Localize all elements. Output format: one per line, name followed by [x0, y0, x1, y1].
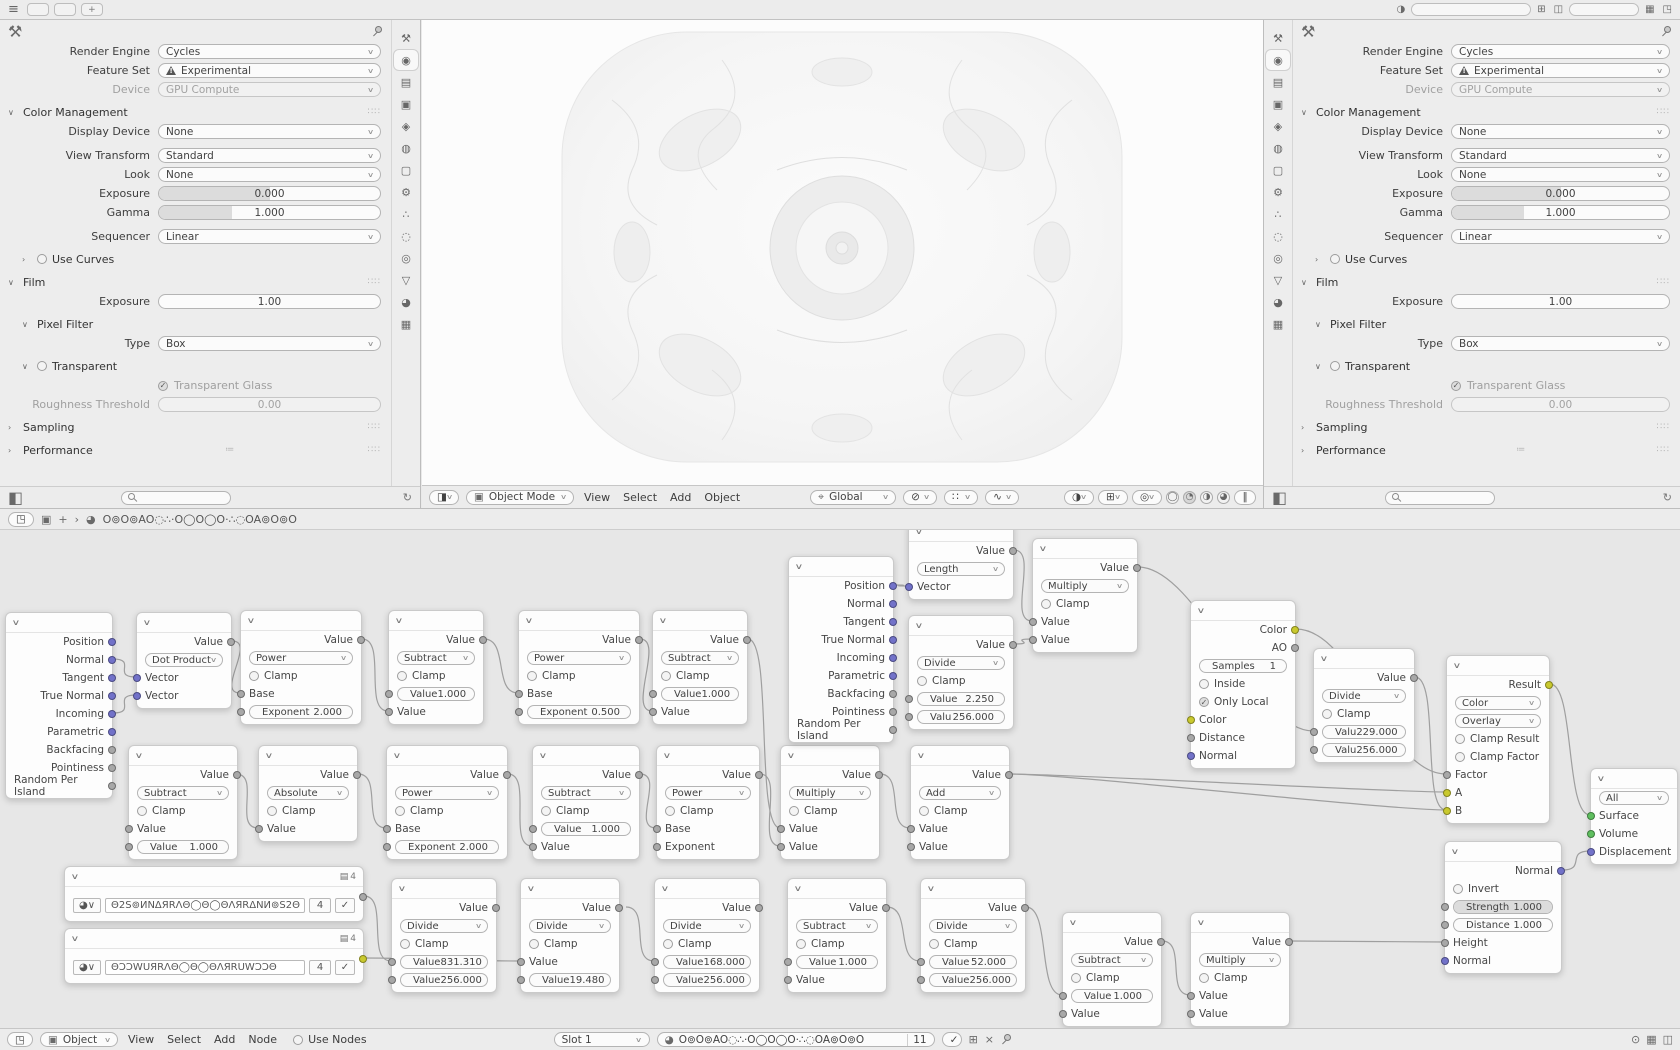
- type-dropdown[interactable]: Box∨: [158, 336, 381, 351]
- transparent-glass-checkbox[interactable]: ✓: [1451, 381, 1461, 391]
- operation-dropdown[interactable]: Subtract∨: [541, 786, 631, 800]
- node-math-subtract-3[interactable]: ∨ValueSubtract∨ClampValueValue1.000: [128, 745, 238, 860]
- properties-tab-texture[interactable]: ▦: [1266, 314, 1290, 334]
- collapse-chevron-icon[interactable]: ∨: [398, 884, 407, 893]
- output-socket[interactable]: [357, 636, 365, 644]
- input-socket[interactable]: [1029, 636, 1037, 644]
- properties-tab-constraints[interactable]: ◎: [394, 248, 418, 268]
- input-socket[interactable]: [125, 843, 133, 851]
- node-image-texture-2[interactable]: ∨▤4◕∨ΘϽϽWUЯRΛΘ◯Θ◯ΘΛЯRUWϽϽΘ4✓: [64, 928, 364, 984]
- collapse-chevron-icon[interactable]: ∨: [539, 751, 548, 760]
- node-material-output[interactable]: ∨All∨SurfaceVolumeDisplacement: [1590, 768, 1678, 865]
- input-socket[interactable]: [784, 976, 792, 984]
- node-header[interactable]: ∨: [1314, 649, 1414, 669]
- properties-editor-icon[interactable]: ◧: [1272, 488, 1287, 507]
- node-header[interactable]: ∨: [657, 746, 759, 766]
- output-socket[interactable]: [889, 690, 897, 698]
- output-socket[interactable]: [1291, 644, 1299, 652]
- output-socket[interactable]: [889, 636, 897, 644]
- refresh-icon[interactable]: ↻: [1663, 491, 1672, 504]
- node-image-texture-1[interactable]: ∨▤4◕∨Θ2S⊚ИNΔЯRΛΘ◯Θ◯ΘΛЯRΔNИ⊚S2Θ4✓: [64, 866, 364, 922]
- output-socket[interactable]: [889, 708, 897, 716]
- node-geometry-2[interactable]: ∨PositionNormalTangentTrue NormalIncomin…: [788, 556, 894, 743]
- value-value-field[interactable]: Value52.000: [929, 955, 1017, 969]
- node-bump[interactable]: ∨NormalInvertStrength1.000Distance1.000H…: [1444, 841, 1562, 974]
- section-film[interactable]: ∨Film∷∷: [0, 272, 391, 292]
- node-math-power-3[interactable]: ∨ValuePower∨ClampBaseExponent2.000: [386, 745, 508, 860]
- input-socket[interactable]: [651, 976, 659, 984]
- overlay-toggle-icon[interactable]: ◫: [1663, 1033, 1673, 1046]
- image-name-field[interactable]: Θ2S⊚ИNΔЯRΛΘ◯Θ◯ΘΛЯRΔNИ⊚S2Θ: [105, 898, 305, 913]
- input-socket[interactable]: [383, 843, 391, 851]
- value-value-field[interactable]: Value19.480: [529, 973, 611, 987]
- pin-icon[interactable]: [372, 26, 383, 37]
- new-scene-icon[interactable]: ⊞: [1535, 4, 1547, 15]
- list-icon[interactable]: ≔: [225, 445, 235, 455]
- properties-tab-constraints[interactable]: ◎: [1266, 248, 1290, 268]
- clamp-checkbox[interactable]: [1071, 973, 1081, 983]
- input-socket[interactable]: [517, 958, 525, 966]
- node-header[interactable]: ∨▤4: [65, 867, 363, 887]
- value-value-field[interactable]: Value1.000: [397, 687, 475, 701]
- input-socket[interactable]: [133, 674, 141, 682]
- falloff-dropdown[interactable]: ∿∨: [985, 490, 1019, 505]
- editor-type-dropdown[interactable]: ◳: [8, 512, 34, 527]
- node-math-divide-3[interactable]: ∨ValueDivide∨ClampValue831.310Value256.0…: [391, 878, 497, 993]
- output-socket[interactable]: [889, 726, 897, 734]
- node-geometry-1[interactable]: ∨PositionNormalTangentTrue NormalIncomin…: [5, 612, 113, 799]
- image-name-field[interactable]: ΘϽϽWUЯRΛΘ◯Θ◯ΘΛЯRUWϽϽΘ: [105, 960, 305, 975]
- menu-node[interactable]: Node: [245, 1033, 280, 1046]
- properties-tab-modifiers[interactable]: ⚙: [394, 182, 418, 202]
- properties-tab-modifiers[interactable]: ⚙: [1266, 182, 1290, 202]
- node-math-divide-2[interactable]: ∨ValueDivide∨ClampValu229.000Valu256.000: [1313, 648, 1415, 763]
- input-socket[interactable]: [1587, 830, 1595, 838]
- input-socket[interactable]: [255, 825, 263, 833]
- value-value-field[interactable]: Value1.000: [541, 822, 631, 836]
- node-mix-color[interactable]: ∨ResultColor∨Overlay∨Clamp ResultClamp F…: [1446, 655, 1550, 824]
- properties-tab-render[interactable]: ◉: [1266, 50, 1290, 70]
- collapse-chevron-icon[interactable]: ∨: [71, 934, 80, 943]
- properties-tab-object-data[interactable]: ▽: [394, 270, 418, 290]
- menu-view[interactable]: View: [581, 491, 613, 504]
- menu-view[interactable]: View: [125, 1033, 157, 1046]
- look-dropdown[interactable]: None∨: [1451, 167, 1670, 182]
- value-value-field[interactable]: Value256.000: [400, 973, 488, 987]
- node-header[interactable]: ∨: [788, 879, 886, 899]
- properties-tab-object-data[interactable]: ▽: [1266, 270, 1290, 290]
- fake-user-button[interactable]: ✓: [942, 1032, 962, 1047]
- node-math-divide-4[interactable]: ∨ValueDivide∨ClampValueValue19.480: [520, 878, 620, 993]
- workspace-tab-2[interactable]: +: [81, 3, 103, 16]
- input-socket[interactable]: [517, 976, 525, 984]
- transparent-glass-checkbox[interactable]: ✓: [158, 381, 168, 391]
- feature-set-dropdown[interactable]: Experimental∨: [158, 63, 381, 78]
- input-socket[interactable]: [649, 690, 657, 698]
- input-socket[interactable]: [385, 708, 393, 716]
- properties-tab-object[interactable]: ▢: [394, 160, 418, 180]
- collapse-chevron-icon[interactable]: ∨: [135, 751, 144, 760]
- shading-mode-3[interactable]: ◕: [1217, 491, 1230, 504]
- output-socket[interactable]: [108, 674, 116, 682]
- section-checkbox[interactable]: [37, 254, 47, 264]
- node-math-absolute[interactable]: ∨ValueAbsolute∨ClampValue: [258, 745, 358, 842]
- input-socket[interactable]: [1187, 1010, 1195, 1018]
- gamma-field[interactable]: 1.000: [1451, 205, 1670, 220]
- output-socket[interactable]: [108, 782, 116, 790]
- input-socket[interactable]: [1441, 939, 1449, 947]
- output-socket[interactable]: [353, 771, 361, 779]
- collapse-chevron-icon[interactable]: ∨: [525, 616, 534, 625]
- node-header[interactable]: ∨: [392, 879, 496, 899]
- input-socket[interactable]: [907, 843, 915, 851]
- output-socket[interactable]: [108, 764, 116, 772]
- output-socket[interactable]: [359, 893, 367, 901]
- input-socket[interactable]: [385, 690, 393, 698]
- properties-tab-view-layer[interactable]: ▣: [1266, 94, 1290, 114]
- strength-value-field[interactable]: Strength1.000: [1453, 900, 1553, 914]
- node-vmath-dot-product[interactable]: ∨ValueDot Product∨VectorVector: [136, 612, 232, 709]
- unlink-material-button[interactable]: ×: [985, 1033, 994, 1046]
- properties-tab-world[interactable]: ◍: [394, 138, 418, 158]
- input-socket[interactable]: [1443, 789, 1451, 797]
- valu-value-field[interactable]: Valu229.000: [1322, 725, 1406, 739]
- input-socket[interactable]: [529, 825, 537, 833]
- output-socket[interactable]: [889, 600, 897, 608]
- operation-dropdown[interactable]: Divide∨: [929, 919, 1017, 933]
- output-socket[interactable]: [108, 728, 116, 736]
- output-socket[interactable]: [1157, 938, 1165, 946]
- grip-icon[interactable]: ∷∷: [1657, 422, 1670, 432]
- output-socket[interactable]: [108, 638, 116, 646]
- menu-object[interactable]: Object: [701, 491, 743, 504]
- output-socket[interactable]: [1009, 547, 1017, 555]
- snap-dropdown[interactable]: ∷∨: [944, 490, 978, 505]
- roughness-threshold-field[interactable]: 0.00: [158, 397, 381, 412]
- input-socket[interactable]: [917, 976, 925, 984]
- output-socket[interactable]: [359, 955, 367, 963]
- input-socket[interactable]: [388, 958, 396, 966]
- collapse-chevron-icon[interactable]: ∨: [795, 562, 804, 571]
- grip-icon[interactable]: ∷∷: [368, 277, 381, 287]
- scene-field[interactable]: [1411, 3, 1531, 16]
- collapse-chevron-icon[interactable]: ∨: [1069, 918, 1078, 927]
- input-socket[interactable]: [917, 958, 925, 966]
- properties-tab-material[interactable]: ◕: [394, 292, 418, 312]
- material-users-count[interactable]: 11: [907, 1034, 926, 1046]
- input-socket[interactable]: [905, 583, 913, 591]
- node-math-divide-5[interactable]: ∨ValueDivide∨ClampValue168.000Value256.0…: [654, 878, 760, 993]
- image-browse-dropdown[interactable]: ◕∨: [73, 960, 101, 975]
- shader-type-dropdown[interactable]: ▣Object∨: [40, 1032, 118, 1047]
- new-material-button[interactable]: ⊞: [969, 1033, 978, 1046]
- node-header[interactable]: ∨: [781, 746, 879, 766]
- input-socket[interactable]: [383, 825, 391, 833]
- properties-tab-particles[interactable]: ∴: [1266, 204, 1290, 224]
- input-socket[interactable]: [1587, 848, 1595, 856]
- visibility-dropdown[interactable]: ◑∨: [1064, 490, 1094, 505]
- node-header[interactable]: ∨: [789, 557, 893, 577]
- image-browse-dropdown[interactable]: ◕∨: [73, 898, 101, 913]
- input-socket[interactable]: [1059, 1010, 1067, 1018]
- operation-dropdown[interactable]: Subtract∨: [661, 651, 739, 665]
- clamp-checkbox[interactable]: [789, 806, 799, 816]
- collapse-chevron-icon[interactable]: ∨: [395, 616, 404, 625]
- grip-icon[interactable]: ∷∷: [1657, 445, 1670, 455]
- clamp-checkbox[interactable]: [541, 806, 551, 816]
- properties-tab-physics[interactable]: ◌: [1266, 226, 1290, 246]
- node-math-subtract-5[interactable]: ∨ValueSubtract∨ClampValue1.000Value: [787, 878, 887, 993]
- value-value-field[interactable]: Value1.000: [796, 955, 878, 969]
- node-editor-canvas[interactable]: ∨PositionNormalTangentTrue NormalIncomin…: [0, 530, 1680, 1028]
- input-socket[interactable]: [905, 713, 913, 721]
- input-socket[interactable]: [388, 976, 396, 984]
- node-header[interactable]: ∨: [129, 746, 237, 766]
- collapse-chevron-icon[interactable]: ∨: [143, 618, 152, 627]
- input-socket[interactable]: [1587, 812, 1595, 820]
- mode-dropdown[interactable]: ▣Object Mode∨: [466, 490, 574, 505]
- operation-dropdown[interactable]: Color∨: [1455, 696, 1541, 710]
- input-socket[interactable]: [1441, 903, 1449, 911]
- output-socket[interactable]: [1545, 681, 1553, 689]
- output-socket[interactable]: [1557, 867, 1565, 875]
- fake-user-button[interactable]: ✓: [335, 898, 355, 913]
- transform-orientation-dropdown[interactable]: ⌖Global∨: [810, 490, 896, 505]
- grip-icon[interactable]: ∷∷: [368, 422, 381, 432]
- output-socket[interactable]: [889, 654, 897, 662]
- node-header[interactable]: ∨: [1191, 601, 1295, 621]
- pause-button[interactable]: ∥: [1234, 490, 1256, 505]
- properties-tab-physics[interactable]: ◌: [394, 226, 418, 246]
- output-socket[interactable]: [108, 656, 116, 664]
- node-math-multiply-2[interactable]: ∨ValueMultiply∨ClampValueValue: [1032, 538, 1138, 653]
- shading-mode-0[interactable]: ◯: [1166, 491, 1179, 504]
- grip-icon[interactable]: ∷∷: [1657, 107, 1670, 117]
- section-performance[interactable]: ›Performance≔∷∷: [1293, 440, 1680, 460]
- clamp-checkbox[interactable]: [929, 939, 939, 949]
- exposure-field[interactable]: 1.00: [1451, 294, 1670, 309]
- collapse-chevron-icon[interactable]: ∨: [71, 872, 80, 881]
- output-socket[interactable]: [1021, 904, 1029, 912]
- operation-dropdown[interactable]: Absolute∨: [267, 786, 349, 800]
- input-socket[interactable]: [515, 708, 523, 716]
- collapse-chevron-icon[interactable]: ∨: [265, 751, 274, 760]
- roughness-threshold-field[interactable]: 0.00: [1451, 397, 1670, 412]
- node-math-power-1[interactable]: ∨ValuePower∨ClampBaseExponent2.000: [240, 610, 362, 725]
- slot-dropdown[interactable]: Slot 1∨: [554, 1032, 650, 1047]
- input-socket[interactable]: [1443, 807, 1451, 815]
- collapse-chevron-icon[interactable]: ∨: [1197, 606, 1206, 615]
- exposure-field[interactable]: 1.00: [158, 294, 381, 309]
- operation-dropdown[interactable]: Subtract∨: [796, 919, 878, 933]
- value-value-field[interactable]: Value1.000: [137, 840, 229, 854]
- section-color-management[interactable]: ∨Color Management∷∷: [1293, 102, 1680, 122]
- input-socket[interactable]: [1187, 734, 1195, 742]
- display-device-dropdown[interactable]: None∨: [158, 124, 381, 139]
- gamma-field[interactable]: 1.000: [158, 205, 381, 220]
- node-header[interactable]: ∨: [921, 879, 1025, 899]
- clamp-checkbox[interactable]: [917, 676, 927, 686]
- output-socket[interactable]: [889, 672, 897, 680]
- operation-dropdown[interactable]: Multiply∨: [1041, 579, 1129, 593]
- section-checkbox[interactable]: [37, 361, 47, 371]
- feature-set-dropdown[interactable]: Experimental∨: [1451, 63, 1670, 78]
- view-transform-dropdown[interactable]: Standard∨: [158, 148, 381, 163]
- output-socket[interactable]: [1291, 626, 1299, 634]
- clamp-checkbox[interactable]: [400, 939, 410, 949]
- collapse-chevron-icon[interactable]: ∨: [917, 751, 926, 760]
- input-socket[interactable]: [1187, 992, 1195, 1000]
- input-socket[interactable]: [907, 825, 915, 833]
- input-socket[interactable]: [651, 958, 659, 966]
- output-socket[interactable]: [227, 638, 235, 646]
- input-socket[interactable]: [905, 695, 913, 703]
- properties-tab-tool[interactable]: ⚒: [1266, 28, 1290, 48]
- value-value-field[interactable]: Value168.000: [663, 955, 751, 969]
- collapse-chevron-icon[interactable]: ∨: [247, 616, 256, 625]
- properties-tab-output[interactable]: ▤: [394, 72, 418, 92]
- workspace-tab-0[interactable]: [27, 3, 49, 16]
- output-socket[interactable]: [755, 771, 763, 779]
- material-selector[interactable]: ◕O⊚O⊚AO◌∴·O◯O◯O·∴◌OA⊚O⊚O11: [657, 1032, 935, 1047]
- section-transparent[interactable]: ∨Transparent: [1293, 356, 1680, 376]
- node-header[interactable]: ∨: [911, 746, 1009, 766]
- output-socket[interactable]: [882, 904, 890, 912]
- value-value-field[interactable]: Value1.000: [1071, 989, 1153, 1003]
- collapse-chevron-icon[interactable]: ∨: [661, 884, 670, 893]
- properties-tab-render[interactable]: ◉: [394, 50, 418, 70]
- properties-tab-tool[interactable]: ⚒: [394, 28, 418, 48]
- node-math-add[interactable]: ∨ValueAdd∨ClampValueValue: [910, 745, 1010, 860]
- section-use-curves[interactable]: ›Use Curves: [1293, 249, 1680, 269]
- output-socket[interactable]: [889, 582, 897, 590]
- output-socket[interactable]: [1133, 564, 1141, 572]
- image-users-count[interactable]: 4: [309, 960, 331, 975]
- collapse-chevron-icon[interactable]: ∨: [1320, 654, 1329, 663]
- properties-tab-world[interactable]: ◍: [1266, 138, 1290, 158]
- output-socket[interactable]: [108, 692, 116, 700]
- node-math-divide-1[interactable]: ∨ValueDivide∨ClampValue2.250Valu256.000: [908, 615, 1014, 730]
- menu-add[interactable]: Add: [667, 491, 694, 504]
- samples-value-field[interactable]: Samples1: [1199, 659, 1287, 673]
- input-socket[interactable]: [133, 692, 141, 700]
- output-socket[interactable]: [755, 904, 763, 912]
- operation-dropdown[interactable]: All∨: [1599, 791, 1669, 805]
- operation-dropdown[interactable]: Overlay∨: [1455, 714, 1541, 728]
- output-socket[interactable]: [108, 710, 116, 718]
- section-performance[interactable]: ›Performance≔∷∷: [0, 440, 391, 460]
- node-math-multiply-1[interactable]: ∨ValueMultiply∨ClampValueValue: [780, 745, 880, 860]
- section-film[interactable]: ∨Film∷∷: [1293, 272, 1680, 292]
- node-ambient-occlusion[interactable]: ∨ColorAOSamples1Inside✓Only LocalColorDi…: [1190, 600, 1296, 769]
- clamp-checkbox[interactable]: [395, 806, 405, 816]
- input-socket[interactable]: [1059, 992, 1067, 1000]
- node-header[interactable]: ∨: [1063, 913, 1161, 933]
- node-header[interactable]: ∨: [1591, 769, 1677, 789]
- device-dropdown[interactable]: GPU Compute∨: [158, 82, 381, 97]
- use-nodes-checkbox[interactable]: [293, 1035, 303, 1045]
- only-local-checkbox[interactable]: ✓: [1199, 697, 1209, 707]
- node-math-subtract-6[interactable]: ∨ValueSubtract∨ClampValue1.000Value: [1062, 912, 1162, 1027]
- grip-icon[interactable]: ∷∷: [368, 107, 381, 117]
- type-dropdown[interactable]: Box∨: [1451, 336, 1670, 351]
- properties-tab-view-layer[interactable]: ▣: [394, 94, 418, 114]
- node-vmath-length[interactable]: ∨ValueLength∨Vector: [908, 530, 1014, 600]
- node-header[interactable]: ∨: [909, 530, 1013, 542]
- collapse-chevron-icon[interactable]: ∨: [915, 621, 924, 630]
- input-socket[interactable]: [1187, 716, 1195, 724]
- output-socket[interactable]: [615, 904, 623, 912]
- operation-dropdown[interactable]: Length∨: [917, 562, 1005, 576]
- menu-select[interactable]: Select: [164, 1033, 204, 1046]
- sequencer-dropdown[interactable]: Linear∨: [158, 229, 381, 244]
- editor-type-dropdown[interactable]: ◳: [7, 1032, 33, 1047]
- operation-dropdown[interactable]: Power∨: [395, 786, 499, 800]
- operation-dropdown[interactable]: Divide∨: [529, 919, 611, 933]
- node-math-subtract-2[interactable]: ∨ValueSubtract∨ClampValue1.000Value: [652, 610, 748, 725]
- output-socket[interactable]: [743, 636, 751, 644]
- clamp-checkbox[interactable]: [527, 671, 537, 681]
- operation-dropdown[interactable]: Multiply∨: [789, 786, 871, 800]
- render-engine-dropdown[interactable]: Cycles∨: [1451, 44, 1670, 59]
- properties-editor-icon[interactable]: ◧: [8, 488, 23, 507]
- input-socket[interactable]: [125, 825, 133, 833]
- render-engine-dropdown[interactable]: Cycles∨: [158, 44, 381, 59]
- node-header[interactable]: ∨: [653, 611, 747, 631]
- value-value-field[interactable]: Value831.310: [400, 955, 488, 969]
- clamp-checkbox[interactable]: [1199, 973, 1209, 983]
- node-header[interactable]: ∨: [137, 613, 231, 633]
- input-socket[interactable]: [1310, 728, 1318, 736]
- output-socket[interactable]: [1009, 641, 1017, 649]
- shader-node-editor[interactable]: ◳▣+›◕O⊚O⊚AO◌∴·O◯O◯O·∴◌OA⊚O⊚O ∨PositionNo…: [0, 508, 1680, 1050]
- view-layer-field[interactable]: [1569, 3, 1639, 16]
- output-socket[interactable]: [875, 771, 883, 779]
- collapse-chevron-icon[interactable]: ∨: [1451, 847, 1460, 856]
- output-socket[interactable]: [479, 636, 487, 644]
- section-checkbox[interactable]: [1330, 361, 1340, 371]
- node-header[interactable]: ∨: [241, 611, 361, 631]
- collapse-chevron-icon[interactable]: ∨: [787, 751, 796, 760]
- valu-value-field[interactable]: Valu256.000: [1322, 743, 1406, 757]
- exponent-value-field[interactable]: Exponent2.000: [249, 705, 353, 719]
- editor-type-dropdown[interactable]: ◨∨: [429, 490, 459, 505]
- collapse-chevron-icon[interactable]: ∨: [915, 530, 924, 536]
- input-socket[interactable]: [1441, 957, 1449, 965]
- viewport-3d[interactable]: ◨∨▣Object Mode∨ViewSelectAddObject⌖Globa…: [422, 20, 1263, 508]
- topbar-toggle-icon-0[interactable]: ▦: [1643, 4, 1656, 15]
- input-socket[interactable]: [777, 843, 785, 851]
- operation-dropdown[interactable]: Multiply∨: [1199, 953, 1281, 967]
- inside-checkbox[interactable]: [1199, 679, 1209, 689]
- clamp-checkbox[interactable]: [137, 806, 147, 816]
- section-pixel-filter[interactable]: ∨Pixel Filter: [0, 314, 391, 334]
- proportional-edit-dropdown[interactable]: ⊘∨: [903, 490, 937, 505]
- clamp-checkbox[interactable]: [919, 806, 929, 816]
- input-socket[interactable]: [515, 690, 523, 698]
- use-nodes-toggle[interactable]: Use Nodes: [293, 1033, 367, 1046]
- output-socket[interactable]: [1005, 771, 1013, 779]
- collapse-chevron-icon[interactable]: ∨: [527, 884, 536, 893]
- collapse-chevron-icon[interactable]: ∨: [794, 884, 803, 893]
- node-header[interactable]: ∨: [259, 746, 357, 766]
- operation-dropdown[interactable]: Add∨: [919, 786, 1001, 800]
- output-socket[interactable]: [635, 771, 643, 779]
- look-dropdown[interactable]: None∨: [158, 167, 381, 182]
- display-device-dropdown[interactable]: None∨: [1451, 124, 1670, 139]
- clamp-checkbox[interactable]: [529, 939, 539, 949]
- overlay-grid-icon[interactable]: ▦: [1646, 1033, 1656, 1046]
